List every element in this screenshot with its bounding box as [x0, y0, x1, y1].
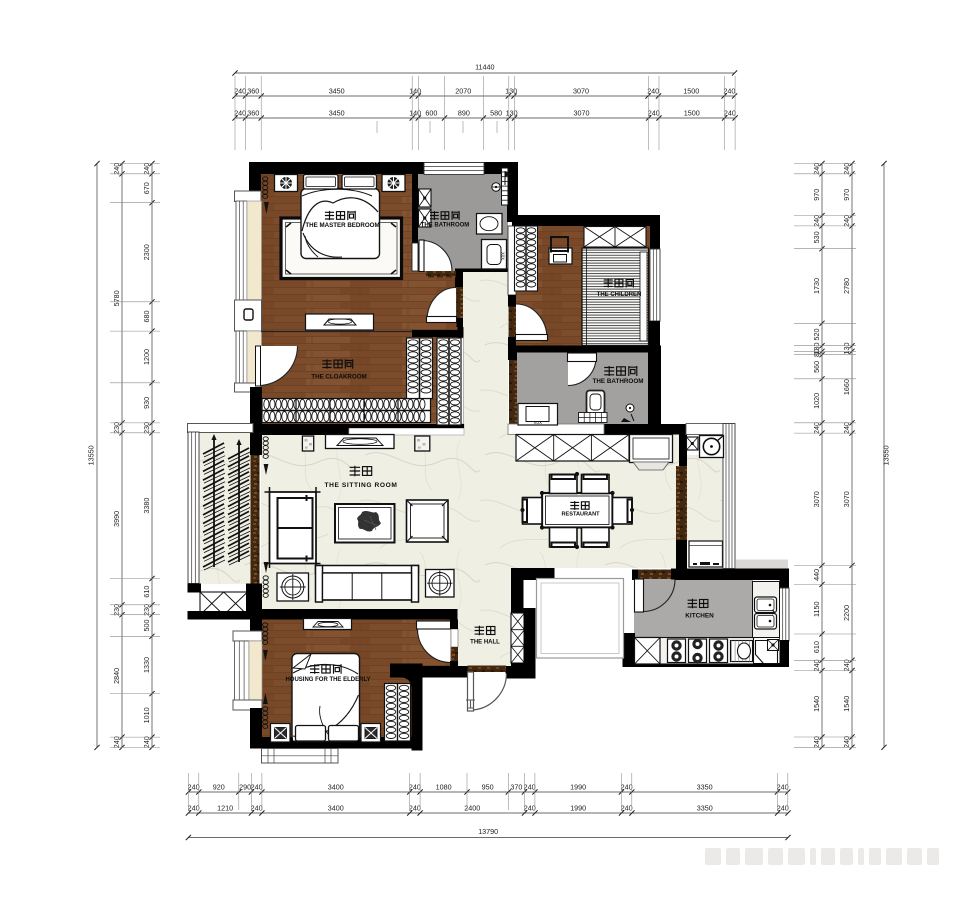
svg-text:1990: 1990: [570, 803, 586, 812]
svg-text:1500: 1500: [684, 108, 700, 117]
svg-text:240: 240: [621, 782, 633, 791]
svg-text:1020: 1020: [812, 393, 821, 409]
svg-text:3070: 3070: [812, 491, 821, 507]
svg-text:13550: 13550: [87, 445, 96, 465]
svg-text:THE CHILDREN: THE CHILDREN: [597, 292, 642, 298]
svg-text:1540: 1540: [842, 696, 851, 712]
svg-text:360: 360: [247, 86, 259, 95]
svg-text:5780: 5780: [112, 290, 121, 306]
svg-text:THE SITTING ROOM: THE SITTING ROOM: [325, 482, 398, 489]
svg-text:240: 240: [723, 86, 735, 95]
svg-text:440: 440: [812, 569, 821, 581]
svg-text:3350: 3350: [697, 782, 713, 791]
svg-text:THE CLOAKROOM: THE CLOAKROOM: [311, 374, 366, 381]
svg-text:240: 240: [409, 782, 421, 791]
svg-text:240: 240: [842, 736, 851, 748]
svg-text:THE BATHROOM: THE BATHROOM: [421, 223, 470, 229]
svg-text:530: 530: [812, 231, 821, 243]
svg-text:1540: 1540: [812, 696, 821, 712]
svg-text:1330: 1330: [142, 657, 151, 673]
svg-text:3070: 3070: [574, 108, 590, 117]
svg-text:240: 240: [234, 86, 246, 95]
svg-text:1150: 1150: [812, 601, 821, 616]
svg-text:230: 230: [142, 604, 151, 616]
svg-text:80: 80: [812, 349, 821, 357]
svg-text:950: 950: [482, 782, 494, 791]
svg-text:130: 130: [506, 108, 518, 117]
svg-text:240: 240: [812, 660, 821, 672]
svg-text:240: 240: [188, 782, 200, 791]
svg-text:240: 240: [112, 163, 121, 175]
svg-text:2070: 2070: [455, 86, 471, 95]
svg-text:970: 970: [842, 189, 851, 201]
svg-text:THE MASTER BEDROOM: THE MASTER BEDROOM: [305, 222, 379, 229]
svg-text:240: 240: [648, 108, 660, 117]
svg-text:240: 240: [647, 86, 659, 95]
svg-text:360: 360: [247, 108, 259, 117]
svg-text:920: 920: [213, 782, 225, 791]
svg-text:240: 240: [812, 163, 821, 175]
svg-text:240: 240: [251, 803, 263, 812]
svg-text:2200: 2200: [842, 605, 851, 621]
svg-text:THE HALL: THE HALL: [470, 640, 500, 646]
svg-text:240: 240: [777, 803, 789, 812]
svg-text:610: 610: [812, 641, 821, 653]
svg-text:500: 500: [142, 620, 151, 632]
svg-text:11440: 11440: [475, 63, 494, 72]
svg-text:240: 240: [842, 422, 851, 434]
svg-text:370: 370: [510, 782, 522, 791]
svg-text:240: 240: [812, 736, 821, 748]
svg-text:1660: 1660: [842, 379, 851, 395]
svg-text:240: 240: [621, 803, 633, 812]
svg-text:HOUSING FOR THE ELDERLY: HOUSING FOR THE ELDERLY: [285, 677, 370, 683]
svg-text:680: 680: [142, 311, 151, 323]
svg-text:3070: 3070: [573, 86, 589, 95]
svg-text:600: 600: [425, 108, 437, 117]
svg-text:1080: 1080: [436, 782, 452, 791]
svg-text:240: 240: [409, 803, 421, 812]
svg-text:240: 240: [142, 736, 151, 748]
svg-text:240: 240: [842, 659, 851, 671]
svg-text:670: 670: [142, 182, 151, 194]
svg-text:2300: 2300: [142, 244, 151, 260]
svg-text:610: 610: [142, 586, 151, 598]
svg-text:290: 290: [239, 782, 251, 791]
svg-text:240: 240: [142, 163, 151, 175]
svg-text:140: 140: [409, 86, 421, 95]
svg-text:130: 130: [505, 86, 517, 95]
svg-text:890: 890: [458, 108, 470, 117]
svg-text:1730: 1730: [812, 278, 821, 294]
svg-text:240: 240: [842, 163, 851, 175]
svg-text:1210: 1210: [217, 803, 233, 812]
svg-text:RESTAURANT: RESTAURANT: [561, 512, 600, 518]
svg-text:230: 230: [112, 604, 121, 616]
svg-text:240: 240: [724, 108, 736, 117]
svg-text:1990: 1990: [570, 782, 586, 791]
svg-text:240: 240: [524, 782, 536, 791]
svg-text:3450: 3450: [329, 86, 345, 95]
svg-text:520: 520: [812, 329, 821, 341]
svg-text:KITCHEN: KITCHEN: [685, 613, 714, 620]
svg-text:3350: 3350: [697, 803, 713, 812]
svg-text:13790: 13790: [478, 827, 498, 836]
svg-text:140: 140: [409, 108, 421, 117]
svg-text:240: 240: [251, 782, 263, 791]
svg-text:THE BATHROOM: THE BATHROOM: [593, 378, 644, 385]
svg-text:3450: 3450: [329, 108, 345, 117]
svg-text:240: 240: [777, 782, 789, 791]
svg-text:240: 240: [812, 215, 821, 227]
svg-text:X0X: X0X: [501, 252, 506, 260]
svg-text:240: 240: [112, 736, 121, 748]
svg-text:240: 240: [524, 803, 536, 812]
svg-text:3380: 3380: [142, 498, 151, 514]
svg-text:580: 580: [490, 108, 502, 117]
svg-text:1200: 1200: [142, 349, 151, 365]
svg-text:3400: 3400: [328, 782, 344, 791]
svg-text:240: 240: [842, 215, 851, 227]
svg-text:930: 930: [142, 397, 151, 409]
svg-text:970: 970: [812, 189, 821, 201]
svg-text:3400: 3400: [328, 803, 344, 812]
svg-text:2400: 2400: [464, 803, 480, 812]
svg-text:3070: 3070: [842, 491, 851, 507]
svg-text:2840: 2840: [112, 668, 121, 684]
svg-text:13550: 13550: [882, 445, 891, 465]
svg-text:X0X: X0X: [533, 420, 542, 425]
svg-text:1500: 1500: [683, 86, 699, 95]
svg-text:560: 560: [812, 361, 821, 373]
svg-text:240: 240: [234, 108, 246, 117]
svg-text:3990: 3990: [112, 511, 121, 527]
svg-text:230: 230: [142, 422, 151, 434]
svg-text:240: 240: [812, 422, 821, 434]
svg-text:1010: 1010: [142, 707, 151, 723]
svg-text:240: 240: [188, 803, 200, 812]
svg-text:130: 130: [842, 343, 851, 355]
svg-text:2780: 2780: [842, 278, 851, 294]
svg-text:230: 230: [112, 422, 121, 434]
